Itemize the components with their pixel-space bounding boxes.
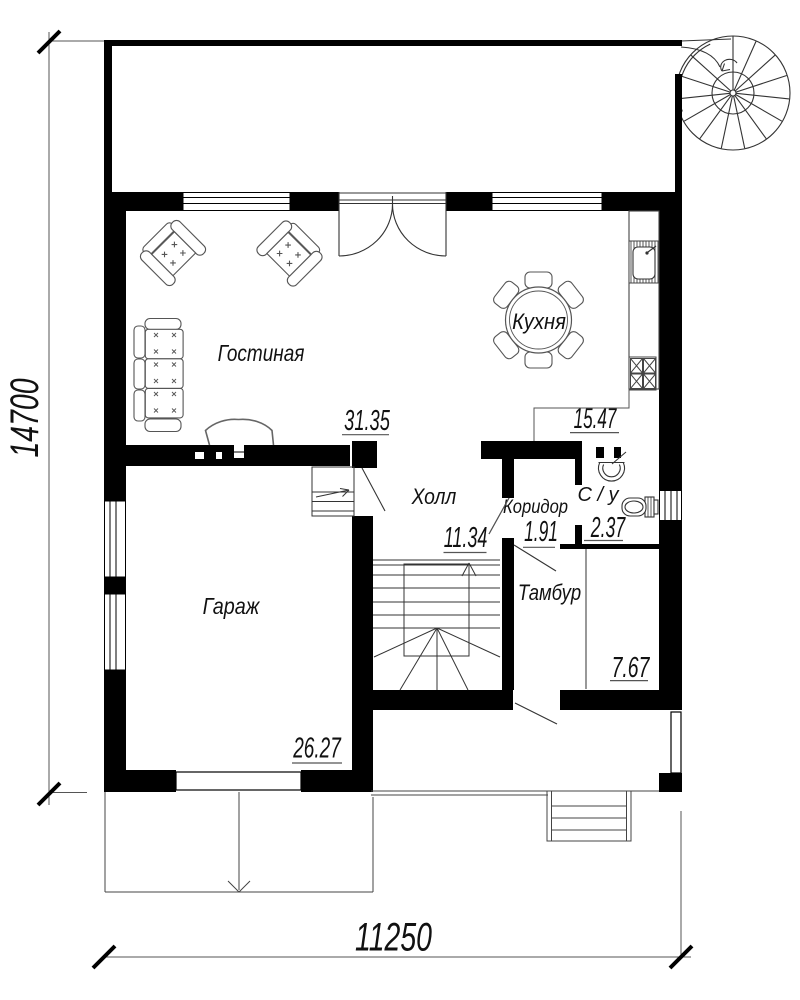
svg-text:15.47: 15.47 <box>574 402 617 435</box>
svg-text:Холл: Холл <box>411 485 457 509</box>
svg-text:С / у: С / у <box>577 484 619 506</box>
svg-text:11250: 11250 <box>355 916 432 960</box>
svg-text:31.35: 31.35 <box>344 405 390 437</box>
svg-text:7.67: 7.67 <box>612 652 651 684</box>
svg-text:14700: 14700 <box>4 378 48 457</box>
svg-text:2.37: 2.37 <box>590 512 626 545</box>
svg-text:1.91: 1.91 <box>524 516 558 549</box>
svg-text:Кухня: Кухня <box>512 310 566 334</box>
svg-text:Тамбур: Тамбур <box>518 582 581 606</box>
svg-text:26.27: 26.27 <box>292 733 341 765</box>
svg-text:Коридор: Коридор <box>503 496 568 518</box>
svg-text:Гостиная: Гостиная <box>218 341 305 366</box>
svg-text:Гараж: Гараж <box>203 594 261 620</box>
svg-text:11.34: 11.34 <box>444 522 488 554</box>
